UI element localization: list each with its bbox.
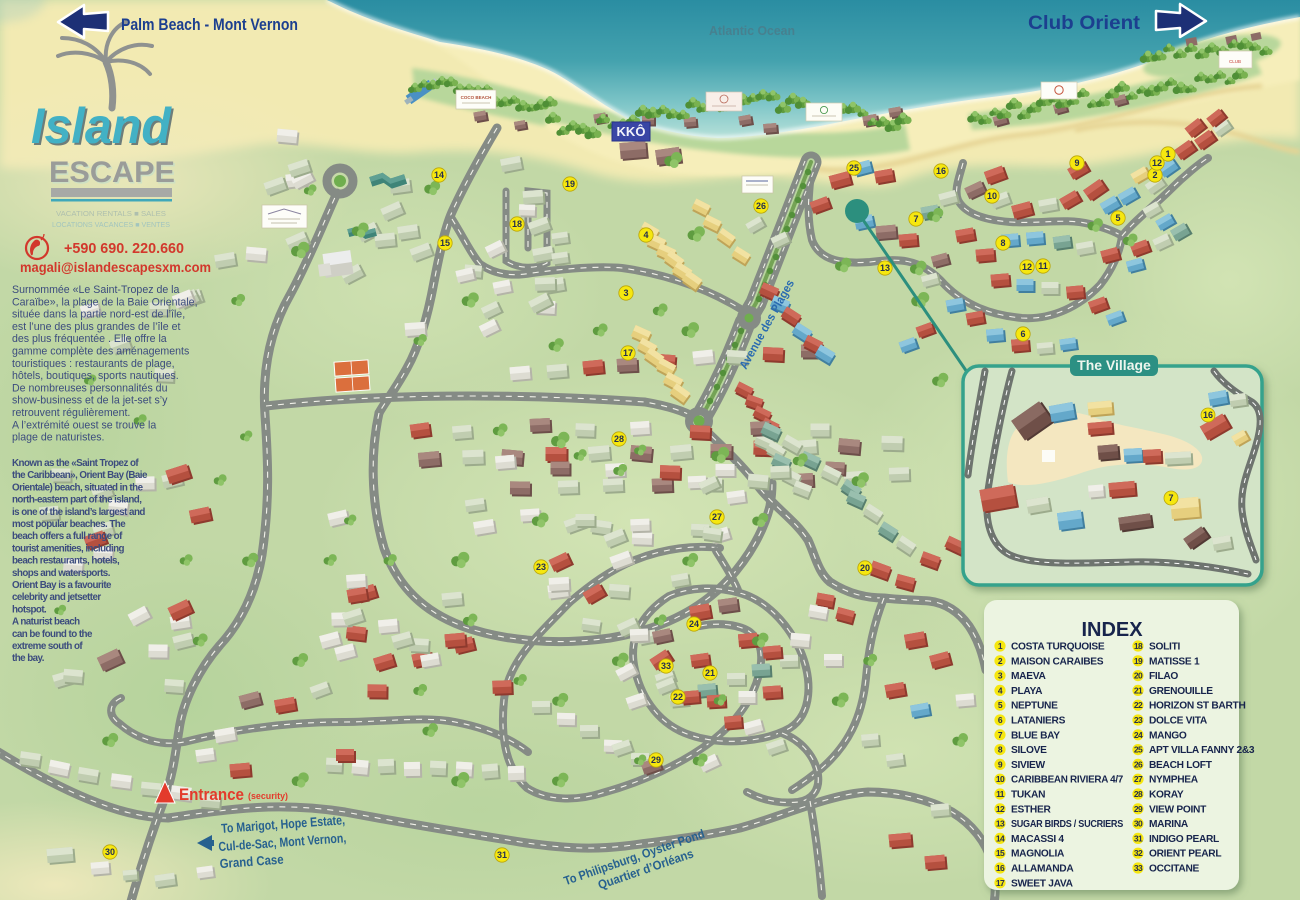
- svg-text:is one of the island’s largest: is one of the island’s largest and: [12, 507, 145, 518]
- svg-text:SUGAR BIRDS / SUCRIERS: SUGAR BIRDS / SUCRIERS: [1011, 819, 1123, 830]
- svg-text:A naturist beach: A naturist beach: [12, 617, 80, 628]
- svg-text:SIVIEW: SIVIEW: [1011, 760, 1046, 771]
- svg-text:27: 27: [712, 512, 722, 522]
- svg-text:COCO BEACH: COCO BEACH: [461, 95, 492, 100]
- svg-text:7: 7: [1168, 493, 1173, 503]
- svg-text:15: 15: [996, 848, 1005, 858]
- svg-text:shops and watersports.: shops and watersports.: [12, 568, 111, 579]
- svg-text:Atlantic Ocean: Atlantic Ocean: [709, 24, 795, 38]
- svg-text:Island: Island: [31, 98, 172, 154]
- svg-text:19: 19: [1134, 656, 1143, 666]
- svg-text:INDIGO PEARL: INDIGO PEARL: [1149, 834, 1219, 845]
- svg-text:Orientale) beach, situated in: Orientale) beach, situated in the: [12, 482, 144, 493]
- svg-text:10: 10: [987, 191, 997, 201]
- svg-text:ESTHER: ESTHER: [1011, 804, 1051, 815]
- svg-text:magali@islandescapesxm.com: magali@islandescapesxm.com: [20, 260, 211, 275]
- svg-text:29: 29: [651, 755, 661, 765]
- svg-text:30: 30: [105, 847, 115, 857]
- svg-text:17: 17: [996, 878, 1005, 888]
- svg-text:20: 20: [860, 563, 870, 573]
- svg-text:MAEVA: MAEVA: [1011, 671, 1046, 682]
- svg-text:10: 10: [996, 774, 1005, 784]
- svg-text:MAGNOLIA: MAGNOLIA: [1011, 849, 1065, 860]
- svg-text:26: 26: [756, 201, 766, 211]
- svg-text:des plus fréquentée . Elle off: des plus fréquentée . Elle offre la: [12, 333, 167, 345]
- svg-text:Caraïbe», la plage de la Baie: Caraïbe», la plage de la Baie Orientale,: [12, 296, 198, 308]
- svg-text:north-eastern part of the isla: north-eastern part of the island,: [12, 495, 142, 506]
- svg-text:OCCITANE: OCCITANE: [1149, 864, 1200, 875]
- svg-text:est l’une des plus grandes de: est l’une des plus grandes de l’île et: [12, 321, 180, 333]
- svg-text:extreme south of: extreme south of: [12, 641, 83, 652]
- svg-text:26: 26: [1134, 759, 1143, 769]
- svg-text:31: 31: [1134, 833, 1143, 843]
- svg-text:De nombreuses personnalités du: De nombreuses personnalités du: [12, 382, 168, 394]
- svg-text:hôtels, boutiques, sports naut: hôtels, boutiques, sports nautiques.: [12, 370, 179, 382]
- svg-text:11: 11: [1038, 261, 1048, 271]
- svg-text:FILAO: FILAO: [1149, 671, 1178, 682]
- svg-text:The Village: The Village: [1077, 357, 1151, 373]
- svg-text:9: 9: [1074, 158, 1079, 168]
- svg-text:Known as the «Saint Tropez of: Known as the «Saint Tropez of: [12, 458, 139, 469]
- svg-text:12: 12: [996, 804, 1005, 814]
- svg-text:hotspot.: hotspot.: [12, 604, 47, 615]
- svg-text:Orient Bay is a favourite: Orient Bay is a favourite: [12, 580, 112, 591]
- svg-text:beach restaurants, hotels,: beach restaurants, hotels,: [12, 556, 120, 567]
- svg-text:can be found to the: can be found to the: [12, 629, 93, 640]
- svg-text:MAISON CARAIBES: MAISON CARAIBES: [1011, 656, 1104, 667]
- svg-text:5: 5: [1115, 213, 1120, 223]
- svg-text:20: 20: [1134, 671, 1143, 681]
- svg-text:MACASSI 4: MACASSI 4: [1011, 834, 1064, 845]
- svg-text:the bay.: the bay.: [12, 653, 45, 664]
- svg-text:touristiques : restaurants de: touristiques : restaurants de plage,: [12, 358, 175, 370]
- svg-text:28: 28: [614, 434, 624, 444]
- svg-text:VACATION RENTALS ■ SALES: VACATION RENTALS ■ SALES: [56, 209, 166, 218]
- svg-text:12: 12: [1022, 262, 1032, 272]
- svg-text:16: 16: [936, 166, 946, 176]
- svg-text:25: 25: [1134, 745, 1143, 755]
- svg-text:PLAYA: PLAYA: [1011, 686, 1043, 697]
- svg-text:+590 690. 220.660: +590 690. 220.660: [64, 241, 184, 257]
- svg-text:DOLCE VITA: DOLCE VITA: [1149, 716, 1208, 727]
- svg-text:COSTA TURQUOISE: COSTA TURQUOISE: [1011, 642, 1105, 653]
- svg-text:12: 12: [1152, 158, 1162, 168]
- svg-text:33: 33: [661, 661, 671, 671]
- svg-text:16: 16: [1203, 410, 1213, 420]
- svg-text:18: 18: [1134, 641, 1143, 651]
- svg-text:CARIBBEAN RIVIERA 4/7: CARIBBEAN RIVIERA 4/7: [1011, 775, 1124, 786]
- svg-text:APT VILLA FANNY 2&3: APT VILLA FANNY 2&3: [1149, 745, 1255, 756]
- svg-text:SILOVE: SILOVE: [1011, 745, 1047, 756]
- svg-text:ALLAMANDA: ALLAMANDA: [1011, 864, 1074, 875]
- svg-text:32: 32: [1134, 848, 1143, 858]
- svg-text:SOLITI: SOLITI: [1149, 642, 1180, 653]
- svg-text:tourist amenities, including: tourist amenities, including: [12, 543, 125, 554]
- svg-text:KORAY: KORAY: [1149, 790, 1184, 801]
- svg-text:SWEET JAVA: SWEET JAVA: [1011, 878, 1074, 889]
- svg-text:21: 21: [1134, 685, 1143, 695]
- svg-text:CLUB: CLUB: [1229, 59, 1241, 64]
- svg-text:22: 22: [673, 692, 683, 702]
- svg-text:gamme complète des aménagement: gamme complète des aménagements: [12, 346, 189, 358]
- svg-text:14: 14: [434, 170, 444, 180]
- svg-text:4: 4: [643, 230, 648, 240]
- svg-text:21: 21: [705, 668, 715, 678]
- svg-text:17: 17: [623, 348, 633, 358]
- svg-text:23: 23: [536, 562, 546, 572]
- svg-text:NYMPHEA: NYMPHEA: [1149, 775, 1199, 786]
- svg-text:18: 18: [512, 219, 522, 229]
- svg-text:MATISSE 1: MATISSE 1: [1149, 656, 1200, 667]
- svg-text:7: 7: [913, 214, 918, 224]
- svg-text:NEPTUNE: NEPTUNE: [1011, 701, 1058, 712]
- svg-text:24: 24: [689, 619, 699, 629]
- svg-text:celebrity and jetsetter: celebrity and jetsetter: [12, 592, 101, 603]
- svg-text:24: 24: [1134, 730, 1143, 740]
- svg-text:8: 8: [1000, 238, 1005, 248]
- svg-text:LATANIERS: LATANIERS: [1011, 716, 1066, 727]
- svg-text:25: 25: [849, 163, 859, 173]
- svg-text:plage de naturistes.: plage de naturistes.: [12, 432, 104, 444]
- svg-text:BLUE BAY: BLUE BAY: [1011, 730, 1060, 741]
- svg-text:Surnommée «Le Saint-Tropez de: Surnommée «Le Saint-Tropez de la: [12, 284, 180, 296]
- svg-text:INDEX: INDEX: [1081, 619, 1143, 641]
- svg-text:27: 27: [1134, 774, 1143, 784]
- svg-text:Palm Beach - Mont Vernon: Palm Beach - Mont Vernon: [121, 15, 298, 34]
- svg-text:2: 2: [1152, 170, 1157, 180]
- svg-text:the Caribbean», Orient Bay (Ba: the Caribbean», Orient Bay (Baie: [12, 470, 148, 481]
- svg-text:GRENOUILLE: GRENOUILLE: [1149, 686, 1213, 697]
- svg-text:33: 33: [1134, 863, 1143, 873]
- svg-text:28: 28: [1134, 789, 1143, 799]
- svg-text:30: 30: [1134, 819, 1143, 829]
- svg-text:Club Orient: Club Orient: [1028, 13, 1141, 34]
- svg-text:most popular beaches. The: most popular beaches. The: [12, 519, 126, 530]
- svg-text:show-business et de la jet-set: show-business et de la jet-set s’y: [12, 395, 168, 407]
- svg-text:ORIENT PEARL: ORIENT PEARL: [1149, 849, 1221, 860]
- svg-text:située dans la partie nord-est: située dans la partie nord-est de l’île,: [12, 309, 185, 321]
- svg-text:HORIZON ST BARTH: HORIZON ST BARTH: [1149, 701, 1246, 712]
- svg-text:VIEW POINT: VIEW POINT: [1149, 804, 1207, 815]
- svg-text:ESCAPE: ESCAPE: [49, 156, 175, 189]
- svg-text:MANGO: MANGO: [1149, 730, 1187, 741]
- svg-text:MARINA: MARINA: [1149, 819, 1189, 830]
- svg-text:15: 15: [440, 238, 450, 248]
- svg-text:LOCATIONS VACANCES ■ VENTES: LOCATIONS VACANCES ■ VENTES: [52, 222, 170, 229]
- svg-text:19: 19: [565, 179, 575, 189]
- svg-text:KKÔ: KKÔ: [617, 124, 646, 139]
- svg-text:16: 16: [996, 863, 1005, 873]
- svg-text:13: 13: [880, 263, 890, 273]
- svg-text:Entrance: Entrance: [179, 786, 244, 804]
- svg-text:11: 11: [996, 789, 1005, 799]
- svg-text:TUKAN: TUKAN: [1011, 790, 1045, 801]
- svg-text:beach offers a full range of: beach offers a full range of: [12, 531, 123, 542]
- svg-text:6: 6: [1020, 329, 1025, 339]
- svg-text:1: 1: [1165, 149, 1170, 159]
- svg-text:29: 29: [1134, 804, 1143, 814]
- svg-text:3: 3: [623, 288, 628, 298]
- svg-text:22: 22: [1134, 700, 1143, 710]
- svg-text:retrouvent régulièrement.: retrouvent régulièrement.: [12, 407, 130, 419]
- svg-text:23: 23: [1134, 715, 1143, 725]
- svg-text:A l’extrémité ouest se trouve: A l’extrémité ouest se trouve la: [12, 419, 156, 431]
- svg-text:13: 13: [996, 819, 1005, 829]
- svg-text:BEACH LOFT: BEACH LOFT: [1149, 760, 1213, 771]
- svg-text:31: 31: [497, 850, 507, 860]
- svg-text:14: 14: [996, 833, 1005, 843]
- svg-text:(security): (security): [248, 791, 288, 802]
